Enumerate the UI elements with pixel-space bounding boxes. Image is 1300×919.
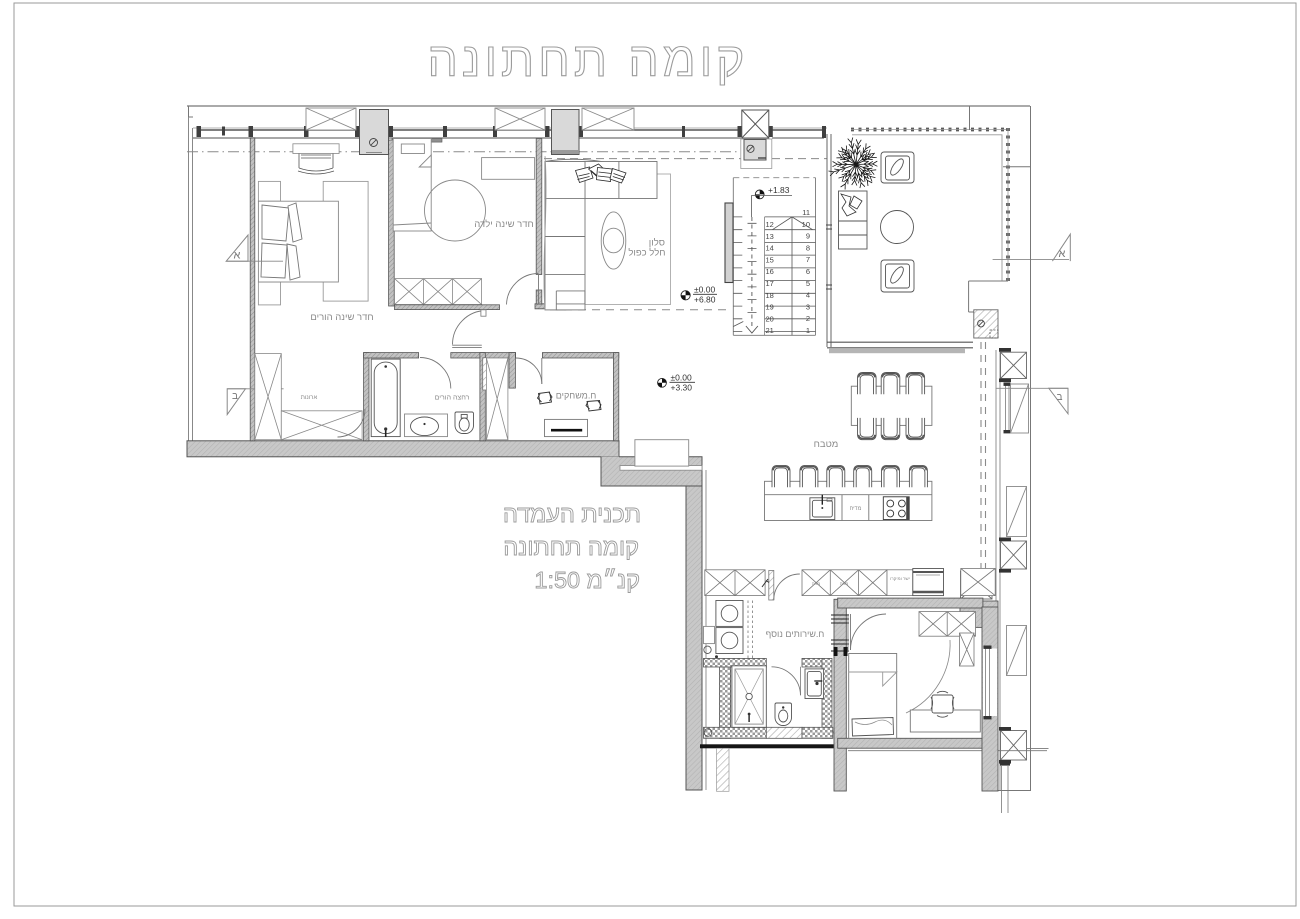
svg-text:חדר שינה ילדה: חדר שינה ילדה (474, 218, 534, 230)
svg-text:8: 8 (806, 243, 810, 252)
svg-text:חדר שינה הורים: חדר שינה הורים (310, 312, 373, 323)
svg-text:מדיח: מדיח (850, 506, 862, 512)
svg-text:+6.80: +6.80 (694, 295, 716, 305)
svg-text:9: 9 (806, 232, 810, 241)
svg-text:±0.00: ±0.00 (671, 373, 692, 383)
svg-text:11: 11 (802, 208, 810, 217)
svg-text:קומה תחתונה: קומה תחתונה (503, 534, 639, 560)
svg-text:+1.83: +1.83 (768, 185, 790, 195)
svg-text:17: 17 (766, 279, 774, 288)
svg-text:13: 13 (766, 232, 774, 241)
svg-text:14: 14 (766, 244, 774, 253)
svg-text:קומה תחתונה: קומה תחתונה (427, 34, 748, 87)
svg-text:תכנית העמדה: תכנית העמדה (503, 501, 641, 527)
svg-text:20: 20 (766, 314, 774, 323)
svg-text:18: 18 (766, 291, 774, 300)
svg-text:±0.00: ±0.00 (694, 285, 715, 295)
svg-text:ב: ב (1057, 392, 1063, 403)
svg-text:12: 12 (766, 220, 774, 229)
svg-text:21: 21 (766, 326, 774, 335)
svg-text:א: א (234, 250, 241, 262)
svg-text:מזוה: מזוה (812, 581, 821, 586)
svg-text:מטבח: מטבח (814, 439, 839, 450)
svg-text:ב: ב (232, 391, 238, 402)
svg-text:ארונות: ארונות (301, 395, 318, 401)
svg-text:2: 2 (806, 314, 810, 323)
svg-text:חלל כפול: חלל כפול (628, 247, 665, 259)
svg-text:1: 1 (806, 326, 810, 335)
svg-text:6: 6 (806, 267, 810, 276)
svg-text:10: 10 (802, 220, 810, 229)
svg-text:3: 3 (806, 302, 810, 311)
svg-text:5: 5 (806, 279, 810, 288)
svg-text:ישר ומיקרו: ישר ומיקרו (890, 576, 910, 581)
svg-text:7: 7 (806, 255, 810, 264)
svg-text:ח.משחקים: ח.משחקים (556, 391, 597, 401)
svg-text:מזוה: מזוה (840, 581, 849, 586)
svg-text:19: 19 (766, 303, 774, 312)
svg-text:+3.30: +3.30 (671, 383, 693, 393)
svg-text:16: 16 (766, 267, 774, 276)
svg-text:4: 4 (806, 291, 810, 300)
svg-text:רחצה הורים: רחצה הורים (435, 395, 470, 402)
svg-text:קנ״מ 1:50: קנ״מ 1:50 (534, 567, 640, 593)
svg-text:ח.שירותים נוסף: ח.שירותים נוסף (766, 629, 825, 639)
svg-text:15: 15 (766, 255, 774, 264)
svg-text:א: א (1059, 248, 1066, 260)
